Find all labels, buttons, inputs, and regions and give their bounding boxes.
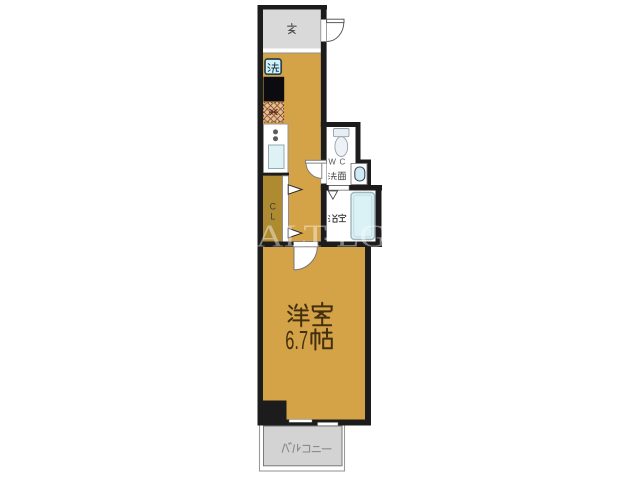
svg-text:WC: WC (328, 157, 349, 166)
svg-text:6.7: 6.7 (285, 327, 308, 355)
svg-text:C: C (270, 202, 277, 212)
svg-text:ALT-LG: ALT-LG (256, 218, 387, 254)
